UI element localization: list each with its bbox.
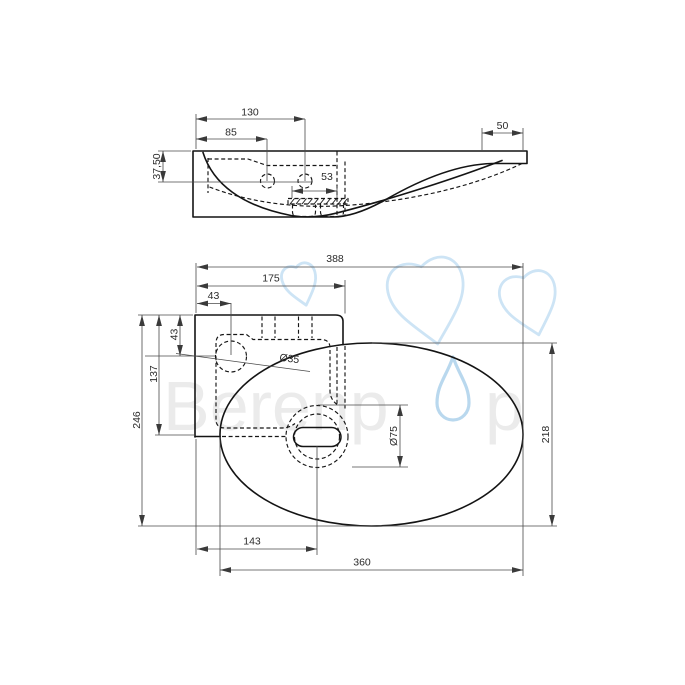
dim-label-143: 143	[243, 536, 261, 548]
hatch-pattern	[290, 199, 347, 205]
dim-label-85: 85	[225, 127, 237, 139]
dim-label-dia35: Ø35	[279, 352, 300, 366]
washbasin-technical-drawing: Berenp p 130	[0, 0, 685, 685]
dim-label-43-left: 43	[169, 329, 181, 341]
water-drop-icon	[437, 357, 469, 420]
dim-label-246: 246	[131, 411, 143, 429]
cloud-icon	[279, 261, 323, 310]
dim-label-dia75: Ø75	[388, 426, 400, 446]
dim-label-130: 130	[241, 107, 259, 119]
technical-drawing-page: Berenp p 130	[0, 0, 685, 685]
dim-label-360: 360	[353, 557, 371, 569]
dim-label-53: 53	[321, 171, 333, 183]
dim-label-50: 50	[497, 120, 509, 132]
side-view: 130 85 37,50 50 53	[151, 107, 527, 218]
dim-label-218: 218	[540, 426, 552, 444]
side-view-hidden-lines	[208, 152, 522, 217]
faucet-hole-side	[261, 174, 275, 188]
dim-label-37-50: 37,50	[151, 153, 163, 179]
dim-label-137: 137	[148, 365, 160, 383]
dim-label-175: 175	[262, 273, 280, 285]
dim-label-43-top: 43	[208, 290, 220, 302]
cloud-icon	[383, 253, 475, 352]
cloud-icon	[496, 267, 566, 342]
watermark-text-left: Berenp	[163, 367, 389, 445]
basin-side-inner-curve	[203, 153, 502, 217]
dim-label-388: 388	[326, 253, 344, 265]
